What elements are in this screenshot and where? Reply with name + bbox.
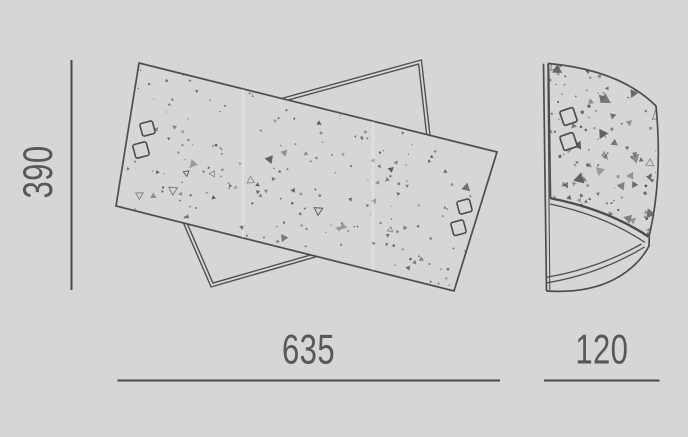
speckle [220, 250, 222, 252]
speckle [449, 71, 452, 74]
speckle [321, 101, 325, 105]
speckle [188, 118, 189, 119]
speckle [412, 144, 413, 145]
speckle [392, 116, 394, 118]
speckle [614, 187, 615, 188]
speckle [370, 272, 372, 274]
speckle [177, 283, 181, 287]
speckle [169, 286, 172, 288]
speckle [118, 277, 119, 278]
speckle [194, 267, 196, 269]
speckle [353, 226, 355, 228]
speckle [438, 283, 440, 285]
speckle [555, 84, 556, 85]
speckle [557, 101, 559, 103]
speckle [597, 164, 599, 166]
front-view [116, 62, 498, 291]
speckle [402, 248, 404, 250]
speckle [132, 230, 136, 235]
speckle [335, 172, 337, 174]
speckle [181, 182, 183, 184]
speckle [583, 174, 584, 175]
speckle [321, 98, 323, 100]
speckle [190, 194, 192, 196]
speckle [156, 282, 158, 284]
speckle [304, 270, 313, 278]
speckle [367, 180, 368, 181]
speckle [182, 65, 183, 66]
speckle [329, 65, 331, 67]
speckle [452, 247, 454, 249]
speckle [447, 268, 450, 271]
speckle [192, 144, 193, 145]
speckle [138, 88, 139, 89]
speckle [464, 104, 466, 106]
speckle [391, 218, 393, 220]
speckle [597, 93, 598, 94]
speckle [166, 111, 167, 112]
speckle [352, 268, 357, 274]
speckle [554, 131, 556, 133]
speckle [595, 110, 597, 112]
speckle [495, 161, 497, 163]
speckle [448, 284, 450, 286]
speckle [564, 75, 566, 77]
speckle [220, 147, 222, 149]
speckle [171, 98, 173, 100]
speckle [294, 143, 296, 145]
speckle [222, 78, 223, 79]
speckle [556, 209, 559, 212]
speckle [206, 66, 209, 69]
speckle [655, 150, 656, 151]
speckle [310, 77, 311, 78]
speckle [251, 66, 252, 67]
speckle [418, 111, 420, 113]
speckle [220, 259, 225, 264]
speckle [366, 137, 368, 139]
speckle [341, 222, 343, 224]
speckle [319, 194, 322, 197]
speckle [370, 214, 371, 215]
speckle [404, 123, 406, 125]
speckle [606, 202, 608, 204]
speckle [270, 251, 274, 256]
speckle [478, 137, 486, 145]
speckle [558, 119, 560, 121]
speckle [397, 182, 400, 185]
speckle [655, 172, 656, 173]
speckle [586, 163, 589, 166]
speckle [140, 223, 148, 231]
depth-dimension-label: 120 [575, 326, 628, 373]
speckle [597, 138, 598, 139]
speckle [472, 95, 476, 99]
speckle [189, 205, 191, 207]
speckle [317, 267, 320, 270]
speckle [436, 65, 437, 66]
speckle [580, 194, 583, 197]
speckle [625, 65, 629, 68]
speckle [631, 157, 633, 159]
speckle [616, 175, 619, 178]
speckle [432, 86, 435, 89]
speckle [575, 95, 577, 97]
speckle [394, 264, 396, 266]
width-dimension: 635 [118, 326, 501, 381]
speckle [585, 129, 588, 132]
speckle [305, 228, 307, 230]
speckle [302, 76, 304, 79]
speckle [138, 270, 140, 272]
speckle [139, 223, 142, 226]
speckle [447, 134, 451, 138]
speckle [152, 171, 154, 173]
speckle [361, 137, 364, 140]
speckle [464, 250, 466, 252]
speckle [621, 123, 623, 125]
speckle [486, 211, 490, 215]
speckle [589, 77, 591, 79]
speckle [177, 151, 179, 153]
speckle [304, 277, 308, 281]
speckle [617, 209, 619, 211]
speckle [275, 287, 277, 290]
speckle [481, 281, 483, 283]
depth-dimension: 120 [544, 326, 660, 381]
speckle [203, 283, 205, 285]
speckle [650, 179, 653, 182]
speckle [581, 111, 584, 114]
speckle [411, 100, 414, 103]
speckle [181, 144, 183, 146]
speckle [428, 263, 430, 265]
side-bottom-inner-curve [546, 244, 642, 278]
speckle [299, 213, 302, 216]
speckle [134, 208, 135, 209]
speckle [184, 159, 185, 160]
speckle [263, 236, 265, 238]
speckle [223, 269, 230, 275]
speckle [319, 272, 323, 276]
speckle [355, 66, 359, 70]
speckle [273, 167, 275, 169]
speckle [383, 150, 384, 151]
speckle [588, 149, 590, 151]
speckle [366, 204, 369, 207]
speckle [621, 196, 623, 198]
speckle [406, 164, 407, 165]
speckle [220, 148, 222, 150]
speckle [629, 97, 630, 98]
speckle [580, 125, 583, 128]
speckle [593, 127, 595, 129]
speckle [116, 137, 120, 142]
mounting-hole [140, 121, 156, 137]
drawing-svg: 390 635 120 [0, 0, 688, 437]
speckle [245, 268, 248, 271]
speckle [212, 145, 214, 147]
speckle [412, 122, 414, 124]
speckle [136, 266, 137, 267]
speckle [285, 109, 287, 111]
speckle [613, 200, 615, 202]
speckle [247, 65, 250, 68]
speckle [286, 168, 288, 170]
speckle [331, 154, 333, 156]
speckle [314, 188, 316, 190]
speckle [161, 190, 163, 192]
speckle [449, 85, 452, 87]
speckle [252, 93, 253, 94]
speckle [344, 282, 345, 283]
speckle [611, 202, 613, 204]
speckle [219, 286, 222, 288]
speckle [390, 206, 391, 207]
speckle [179, 200, 181, 202]
speckle [185, 275, 192, 282]
speckle [203, 171, 205, 173]
speckle [195, 207, 197, 209]
speckle [408, 154, 409, 155]
speckle [639, 234, 640, 235]
speckle [405, 107, 409, 111]
speckle [316, 104, 318, 106]
speckle [588, 116, 590, 118]
speckle [187, 139, 189, 141]
speckle [298, 277, 303, 282]
speckle [321, 69, 326, 74]
speckle [587, 105, 590, 108]
speckle [648, 89, 650, 91]
speckle [291, 202, 294, 205]
speckle [611, 127, 612, 128]
speckle [219, 111, 220, 112]
speckle [350, 165, 353, 168]
speckle [231, 236, 234, 239]
speckle [586, 89, 588, 91]
speckle [149, 232, 154, 236]
speckle [339, 118, 340, 119]
speckle [563, 154, 564, 155]
height-dimension: 390 [14, 60, 71, 290]
speckle [151, 273, 159, 280]
speckle [336, 267, 340, 271]
speckle [379, 222, 381, 224]
speckle [364, 130, 367, 133]
speckle [153, 98, 154, 99]
width-dimension-label: 635 [282, 326, 335, 373]
speckle [184, 216, 186, 218]
speckle [271, 64, 274, 67]
speckle [121, 79, 124, 82]
speckle [588, 100, 589, 101]
speckle [610, 128, 613, 131]
speckle [220, 176, 222, 178]
speckle [340, 276, 342, 278]
speckle [246, 235, 248, 237]
speckle [655, 230, 665, 241]
speckle [465, 287, 468, 290]
speckle [135, 237, 137, 239]
mounting-hole [457, 199, 473, 215]
speckle [606, 218, 609, 221]
speckle [645, 73, 650, 79]
speckle [225, 262, 227, 265]
dimension-drawing: 390 635 120 [0, 0, 688, 437]
speckle [607, 152, 609, 154]
speckle [179, 224, 180, 225]
speckle [252, 95, 254, 97]
speckle [418, 255, 420, 257]
speckle [162, 186, 164, 188]
speckle [437, 113, 438, 114]
speckle [278, 69, 280, 71]
speckle [574, 234, 576, 236]
speckle [642, 82, 643, 83]
speckle [569, 235, 572, 238]
speckle [221, 168, 224, 171]
speckle [627, 97, 628, 98]
speckle [395, 124, 397, 126]
speckle [598, 75, 601, 78]
speckle [574, 164, 577, 167]
speckle [417, 225, 420, 228]
speckle [618, 72, 624, 79]
speckle [148, 268, 149, 269]
mounting-hole [132, 141, 149, 158]
speckle [389, 175, 391, 177]
speckle [325, 232, 326, 233]
speckle [429, 237, 432, 240]
speckle [387, 86, 389, 88]
speckle [209, 99, 211, 101]
speckle [120, 273, 128, 280]
speckle [440, 269, 441, 270]
speckle [226, 261, 230, 266]
side-backplate-outer-edge [544, 64, 547, 291]
speckle [215, 144, 218, 147]
speckle [144, 214, 146, 216]
speckle [418, 204, 420, 206]
speckle [644, 184, 647, 187]
side-view [544, 59, 666, 291]
speckle [206, 192, 208, 194]
speckle [145, 268, 149, 272]
speckle [551, 113, 553, 115]
speckle [477, 97, 479, 99]
speckle [658, 90, 661, 93]
height-dimension-label: 390 [14, 146, 61, 199]
speckle [282, 71, 283, 72]
speckle [300, 224, 303, 227]
speckle [221, 153, 223, 155]
speckle [180, 243, 185, 248]
speckle [431, 82, 433, 84]
speckle [189, 167, 190, 168]
speckle [151, 217, 154, 220]
speckle [134, 161, 136, 163]
speckle [280, 145, 281, 146]
mounting-hole [450, 220, 466, 236]
speckle [340, 115, 341, 116]
speckle [120, 65, 123, 68]
speckle [605, 136, 606, 137]
speckle [144, 247, 146, 249]
speckle [409, 258, 412, 261]
speckle [648, 85, 649, 86]
speckle [148, 83, 150, 85]
speckle [406, 180, 408, 182]
speckle [629, 67, 631, 69]
speckle [561, 94, 562, 95]
